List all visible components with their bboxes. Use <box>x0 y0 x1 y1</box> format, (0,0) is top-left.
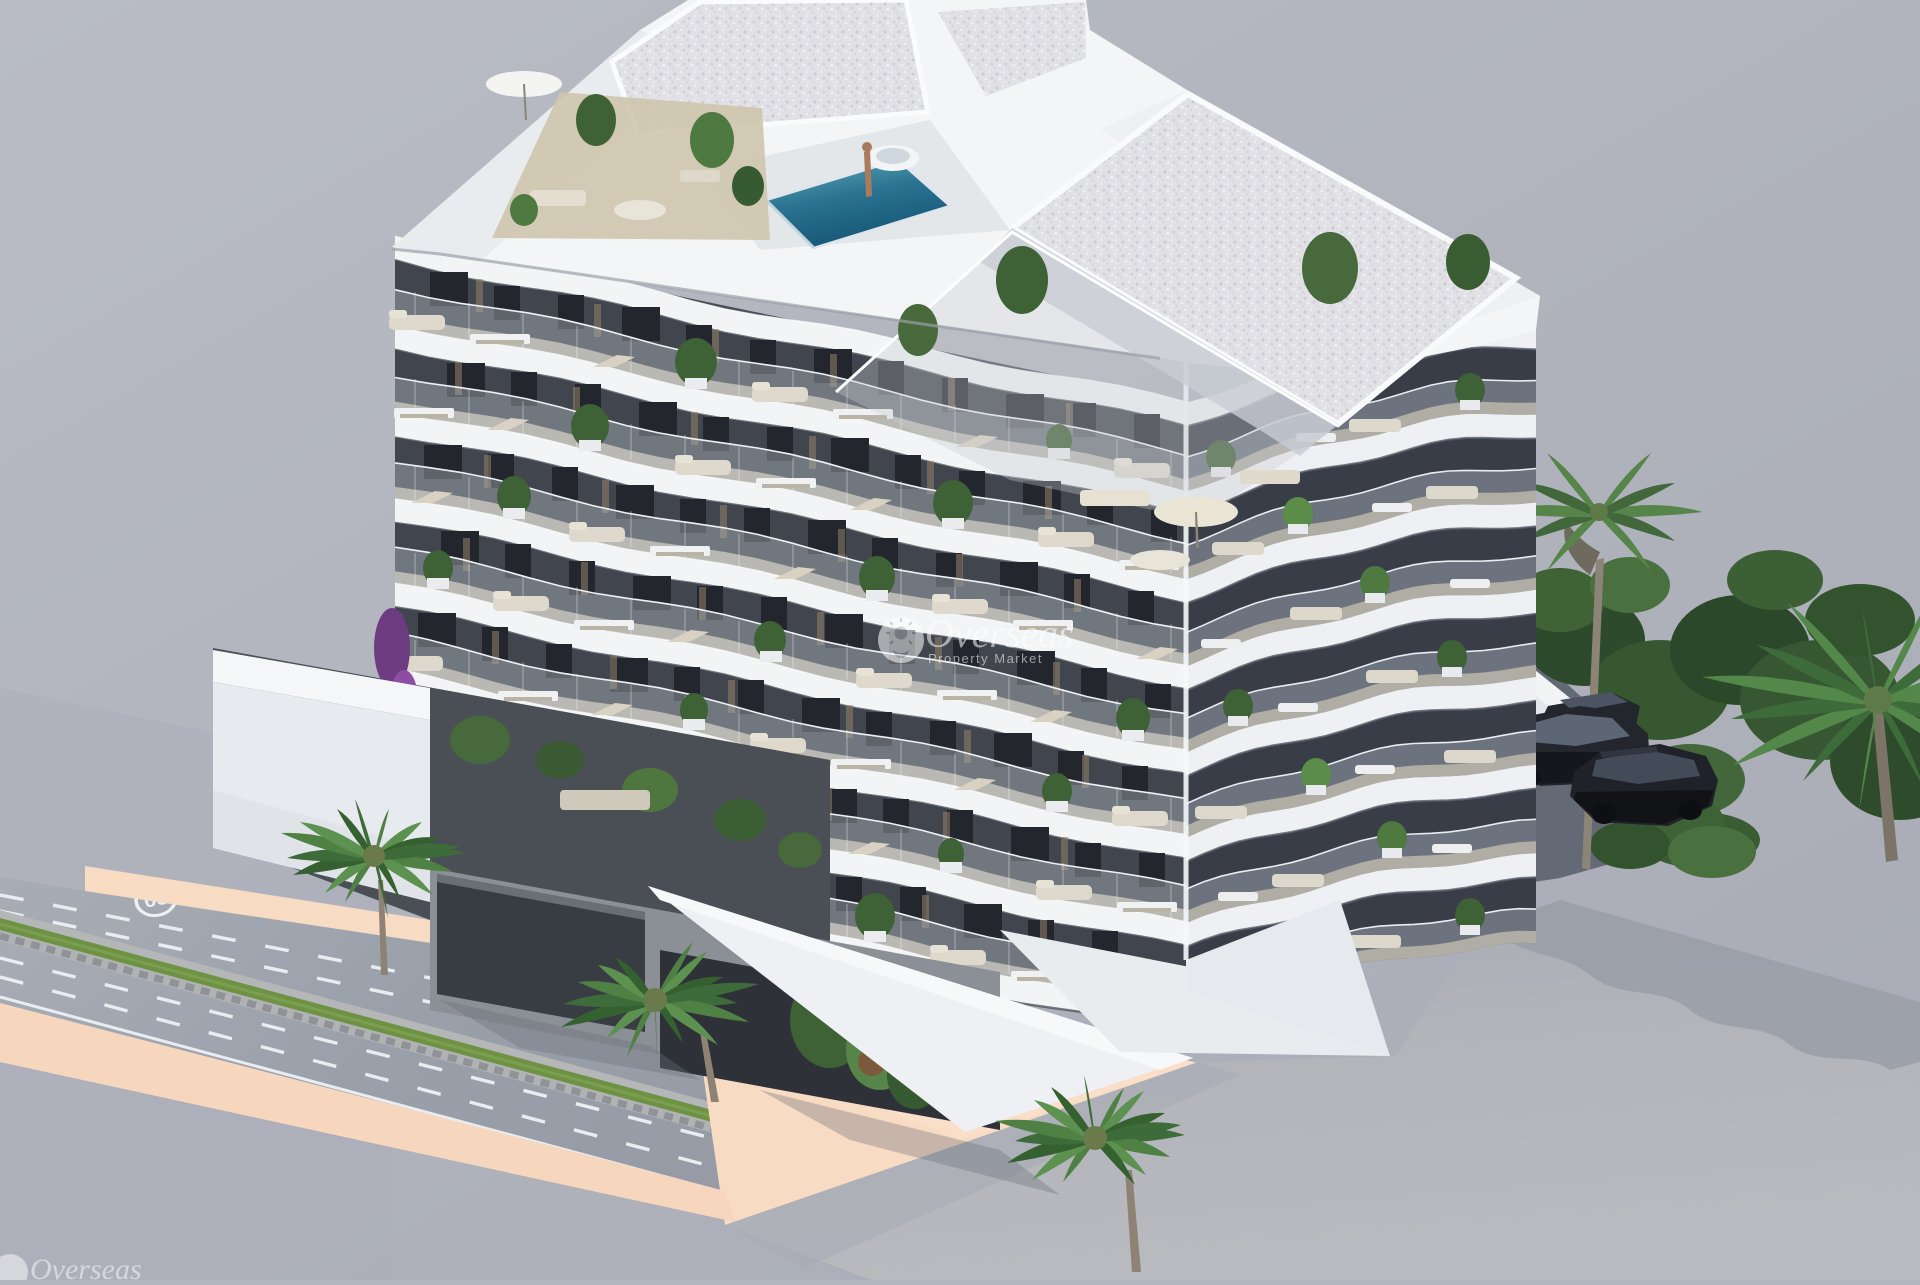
svg-text:Property Market: Property Market <box>928 651 1043 666</box>
svg-text:Overseas: Overseas <box>30 1253 142 1280</box>
svg-text:Overseas: Overseas <box>925 611 1074 656</box>
